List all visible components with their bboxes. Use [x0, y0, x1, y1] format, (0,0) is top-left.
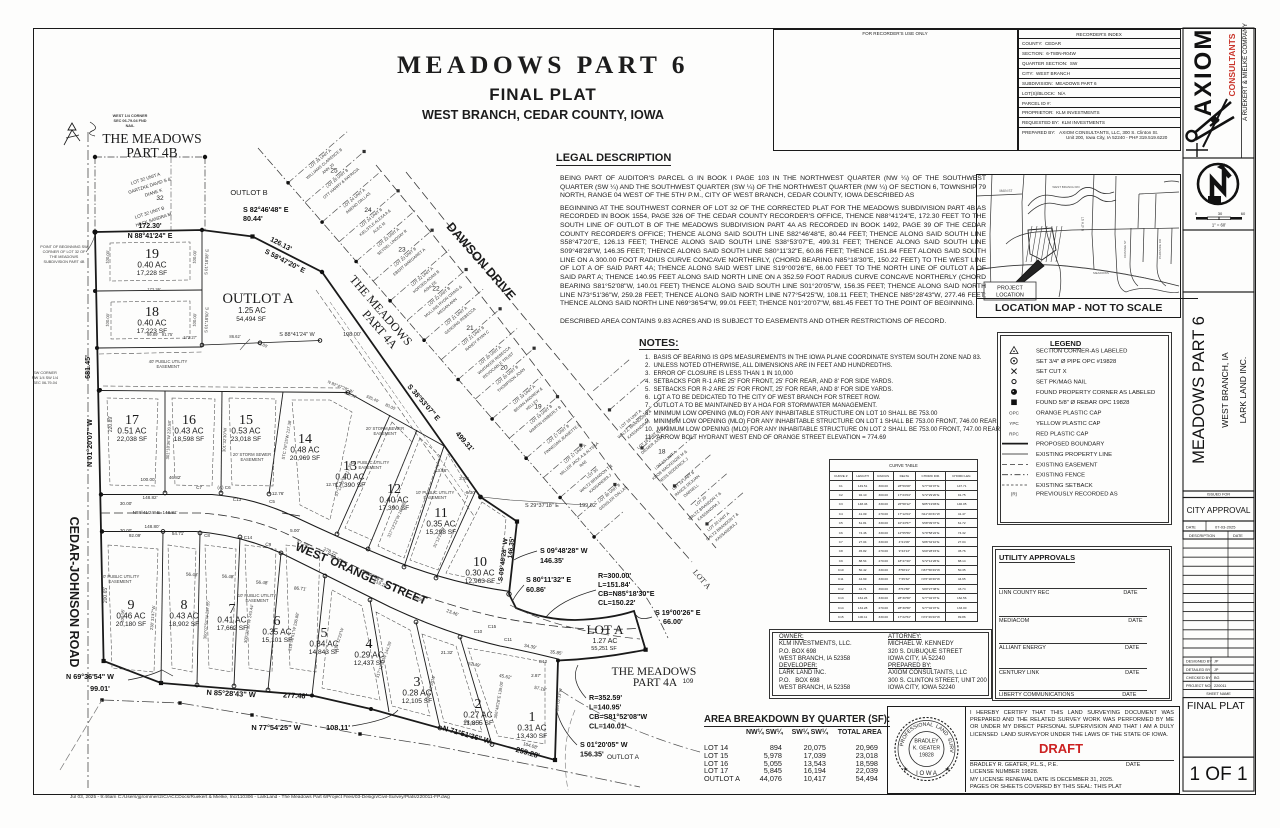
svg-text:54,494 SF: 54,494 SF — [236, 316, 266, 323]
svg-text:116.51': 116.51' — [343, 390, 357, 400]
svg-text:N 88°41'24" E: N 88°41'24" E — [128, 232, 173, 240]
svg-text:S 82°46'48" E: S 82°46'48" E — [243, 205, 289, 214]
svg-text:CHECKED BY: CHECKED BY — [1186, 676, 1211, 680]
svg-text:DETAILED BY: DETAILED BY — [1186, 668, 1211, 672]
svg-text:3.00': 3.00' — [459, 476, 469, 481]
svg-text:22,038 SF: 22,038 SF — [117, 436, 147, 443]
svg-text:45.62': 45.62' — [499, 673, 512, 680]
svg-text:499.31': 499.31' — [454, 429, 477, 453]
svg-text:S 80°11'32" E: S 80°11'32" E — [526, 575, 571, 584]
svg-text:EASEMENT: EASEMENT — [156, 364, 179, 369]
svg-text:WEST 1/4 CORNER: WEST 1/4 CORNER — [113, 114, 148, 118]
svg-text:0.51 AC: 0.51 AC — [117, 427, 146, 436]
svg-text:100.95': 100.95' — [120, 609, 126, 623]
svg-text:60.86': 60.86' — [526, 585, 546, 594]
svg-text:PART 4A: PART 4A — [633, 677, 678, 689]
svg-text:156.35': 156.35' — [580, 750, 604, 759]
svg-text:0.27 AC: 0.27 AC — [463, 711, 492, 720]
svg-text:S 01°20'05" W: S 01°20'05" W — [580, 740, 628, 749]
svg-text:N 01°20'07" W: N 01°20'07" W — [85, 419, 94, 467]
svg-text:PART 4B: PART 4B — [126, 145, 177, 160]
svg-text:S 19°00'26" E: S 19°00'26" E — [655, 608, 701, 617]
svg-text:54.71': 54.71' — [172, 531, 184, 536]
svg-text:C13: C13 — [233, 497, 242, 502]
svg-text:18,902 SF: 18,902 SF — [169, 621, 199, 628]
svg-text:EASEMENT: EASEMENT — [373, 431, 396, 436]
svg-text:22: 22 — [432, 286, 440, 293]
svg-text:C9: C9 — [265, 542, 272, 548]
svg-text:C8: C8 — [204, 533, 210, 538]
svg-text:18,598 SF: 18,598 SF — [174, 436, 204, 443]
svg-text:0.35 AC: 0.35 AC — [262, 628, 291, 637]
svg-text:148.82': 148.82' — [143, 495, 158, 500]
svg-text:66.00': 66.00' — [663, 617, 683, 626]
svg-text:LOT A: LOT A — [587, 622, 625, 637]
svg-text:20,969 SF: 20,969 SF — [290, 455, 320, 462]
svg-text:07-03-2025: 07-03-2025 — [1215, 525, 1236, 530]
svg-text:NAIL: NAIL — [126, 124, 136, 128]
svg-text:0: 0 — [1195, 211, 1198, 216]
svg-text:199.02': 199.02' — [579, 503, 597, 509]
svg-text:L=140.95': L=140.95' — [589, 703, 622, 712]
svg-text:MEADOWS PART 6: MEADOWS PART 6 — [1190, 316, 1208, 464]
svg-text:LARK LAND INC.: LARK LAND INC. — [1238, 357, 1248, 424]
svg-text:C14: C14 — [244, 535, 253, 540]
svg-text:SW CORNER: SW CORNER — [33, 371, 57, 375]
svg-text:EASEMENT: EASEMENT — [240, 457, 263, 462]
svg-text:0.40 AC: 0.40 AC — [137, 319, 166, 328]
svg-text:18: 18 — [658, 449, 666, 456]
svg-text:N 77°54'25" W: N 77°54'25" W — [251, 723, 300, 732]
svg-text:20: 20 — [500, 364, 508, 371]
svg-text:N 85°28'43" W: N 85°28'43" W — [206, 688, 256, 700]
svg-text:13,430 SF: 13,430 SF — [517, 733, 547, 740]
svg-text:80.44': 80.44' — [243, 214, 263, 223]
svg-text:EASEMENT: EASEMENT — [358, 465, 381, 470]
svg-text:JP: JP — [1214, 668, 1219, 672]
svg-text:0.43 AC: 0.43 AC — [174, 427, 203, 436]
svg-text:WEST BRANCH, IA: WEST BRANCH, IA — [1220, 352, 1230, 428]
svg-text:1" = 60’: 1" = 60’ — [1212, 223, 1226, 228]
svg-text:17,662 SF: 17,662 SF — [217, 625, 247, 632]
svg-text:24: 24 — [364, 207, 372, 214]
svg-text:0.29 AC: 0.29 AC — [354, 651, 383, 660]
svg-text:172.27': 172.27' — [183, 335, 197, 340]
svg-text:S 29°37'18" E: S 29°37'18" E — [525, 503, 559, 509]
svg-text:1.27 AC: 1.27 AC — [593, 638, 618, 645]
svg-text:99.89' 91.75': 99.89' 91.75' — [147, 332, 173, 337]
svg-text:0.30 AC: 0.30 AC — [465, 569, 494, 578]
svg-text:L=151.84': L=151.84' — [598, 580, 631, 589]
svg-text:148.80': 148.80' — [145, 524, 160, 529]
svg-text:13.46': 13.46' — [435, 468, 447, 473]
svg-text:23: 23 — [398, 246, 406, 253]
svg-text:335.40': 335.40' — [365, 394, 380, 404]
svg-text:238' 31'47"W: 238' 31'47"W — [149, 605, 156, 630]
svg-text:100.00': 100.00' — [192, 250, 198, 264]
svg-text:23.46': 23.46' — [446, 608, 459, 617]
svg-text:FINAL PLAT: FINAL PLAT — [1187, 700, 1245, 712]
svg-text:NW 1/4 SW 1/4: NW 1/4 SW 1/4 — [32, 376, 58, 380]
svg-text:C15: C15 — [488, 624, 497, 629]
svg-text:0.31 AC: 0.31 AC — [517, 724, 546, 733]
svg-text:(33°02'33"W: (33°02'33"W — [554, 688, 563, 712]
svg-text:220.89': 220.89' — [108, 416, 114, 432]
svg-text:R=300.00': R=300.00' — [598, 571, 631, 580]
svg-text:30.00': 30.00' — [120, 501, 132, 506]
svg-text:100.00': 100.00' — [141, 477, 156, 482]
svg-text:1.25 AC: 1.25 AC — [238, 306, 266, 315]
svg-text:2.87': 2.87' — [531, 673, 541, 678]
svg-text:100.00': 100.00' — [105, 313, 111, 327]
svg-text:STREET: STREET — [382, 579, 428, 608]
svg-text:N 69°36'54" W: N 69°36'54" W — [66, 672, 114, 681]
svg-text:EASEMENT: EASEMENT — [108, 579, 131, 584]
svg-text:277.46': 277.46' — [283, 690, 308, 700]
svg-text:EASEMENT: EASEMENT — [423, 495, 446, 500]
svg-text:21: 21 — [466, 325, 474, 332]
svg-text:DATE: DATE — [1233, 534, 1243, 538]
svg-text:THE MEADOWS: THE MEADOWS — [102, 131, 201, 146]
svg-text:19: 19 — [534, 404, 542, 411]
svg-text:CONSULTANTS: CONSULTANTS — [1227, 33, 1237, 96]
svg-text:CL=140.01': CL=140.01' — [589, 722, 627, 731]
svg-text:25: 25 — [330, 168, 338, 175]
svg-text:12.76': 12.76' — [272, 491, 284, 496]
svg-text:100.00': 100.00' — [192, 313, 198, 327]
svg-text:86.71': 86.71' — [294, 585, 307, 591]
svg-text:SEC 06-79-04 FND: SEC 06-79-04 FND — [114, 119, 147, 123]
svg-text:DATE: DATE — [1186, 526, 1196, 530]
svg-text:301°18'36"W 220.58': 301°18'36"W 220.58' — [165, 420, 172, 459]
svg-text:THE MEADOWS: THE MEADOWS — [50, 255, 79, 259]
svg-text:1 OF 1: 1 OF 1 — [1189, 764, 1247, 785]
svg-text:146.35': 146.35' — [540, 556, 564, 565]
svg-text:DESIGNED BY: DESIGNED BY — [1186, 660, 1212, 664]
svg-text:(A) C6: (A) C6 — [217, 485, 231, 490]
svg-text:C5: C5 — [269, 499, 275, 504]
svg-text:S 01°18'38" E: S 01°18'38" E — [203, 249, 209, 275]
svg-text:CB=S81°52'08"W: CB=S81°52'08"W — [589, 712, 647, 721]
svg-text:OUTLOT A: OUTLOT A — [607, 754, 640, 761]
svg-text:92.09': 92.09' — [129, 533, 141, 538]
svg-text:306°48'28"E 139.00': 306°48'28"E 139.00' — [493, 680, 505, 718]
svg-text:35.85': 35.85' — [550, 649, 563, 656]
svg-text:CORNER OF LOT 32 OF: CORNER OF LOT 32 OF — [43, 250, 86, 254]
svg-text:A RUEKERT & MIELKE COMPANY: A RUEKERT & MIELKE COMPANY — [1242, 23, 1249, 121]
svg-text:0.41 AC: 0.41 AC — [217, 616, 246, 625]
svg-text:CEDAR-JOHNSON ROAD: CEDAR-JOHNSON ROAD — [67, 517, 81, 668]
svg-text:56.48': 56.48' — [186, 572, 199, 578]
svg-text:34.39': 34.39' — [524, 643, 537, 650]
svg-text:0.43 AC: 0.43 AC — [169, 612, 198, 621]
svg-text:C12: C12 — [539, 659, 548, 664]
svg-text:32: 32 — [156, 195, 164, 202]
svg-text:55,251 SF: 55,251 SF — [591, 646, 617, 652]
svg-text:SUBDIVISION PART 4B: SUBDIVISION PART 4B — [44, 260, 85, 264]
svg-text:C10: C10 — [474, 629, 483, 634]
svg-text:41.80': 41.80' — [256, 340, 268, 349]
svg-text:OUTLOT A: OUTLOT A — [222, 291, 294, 307]
svg-text:C7: C7 — [196, 485, 202, 490]
svg-text:LOT A: LOT A — [691, 568, 713, 591]
svg-text:CB=N85°18'30"E: CB=N85°18'30"E — [598, 589, 655, 598]
svg-text:EASEMENT: EASEMENT — [245, 598, 268, 603]
svg-text:681.45': 681.45' — [83, 355, 92, 379]
svg-text:N88°41'24" E 148.81': N88°41'24" E 148.81' — [133, 510, 178, 515]
svg-text:12,963 SF: 12,963 SF — [465, 578, 495, 585]
svg-text:17,228 SF: 17,228 SF — [137, 270, 167, 277]
svg-text:PROJECT NO.: PROJECT NO. — [1186, 684, 1211, 688]
svg-text:200.65': 200.65' — [103, 587, 109, 603]
svg-text:60: 60 — [1241, 211, 1246, 216]
svg-text:S 01°18'50" E: S 01°18'50" E — [203, 307, 209, 333]
svg-text:JP: JP — [1214, 660, 1219, 664]
svg-text:SEC 06-79-04: SEC 06-79-04 — [33, 381, 57, 385]
svg-text:300°07'55"W 237.55': 300°07'55"W 237.55' — [202, 600, 210, 639]
svg-text:220011: 220011 — [1214, 684, 1226, 688]
svg-text:86.62': 86.62' — [229, 334, 240, 339]
svg-text:0.53 AC: 0.53 AC — [231, 427, 260, 436]
svg-text:-9.30': -9.30' — [464, 490, 475, 495]
svg-text:DESCRIPTION: DESCRIPTION — [1189, 534, 1215, 538]
svg-text:46.82': 46.82' — [169, 475, 181, 480]
svg-text:172.26': 172.26' — [147, 287, 161, 292]
svg-text:5.00': 5.00' — [290, 528, 300, 533]
svg-text:S 09°48'28" W: S 09°48'28" W — [540, 546, 588, 555]
svg-text:21.32': 21.32' — [441, 650, 453, 655]
svg-text:S 09°48'28" W: S 09°48'28" W — [496, 537, 509, 582]
svg-text:108.00': 108.00' — [343, 332, 361, 338]
svg-text:CITY APPROVAL: CITY APPROVAL — [1187, 506, 1251, 515]
svg-text:0.48 AC: 0.48 AC — [290, 446, 319, 455]
svg-text:OUTLOT B: OUTLOT B — [230, 188, 267, 197]
svg-text:AXIOM: AXIOM — [1190, 28, 1217, 117]
svg-text:12.76': 12.76' — [326, 482, 338, 487]
svg-text:POINT OF BEGINNING SW: POINT OF BEGINNING SW — [40, 245, 88, 249]
svg-text:SHEET NAME: SHEET NAME — [1206, 692, 1231, 696]
svg-text:ISSUED FOR: ISSUED FOR — [1207, 493, 1230, 497]
svg-text:R=352.59': R=352.59' — [589, 693, 622, 702]
svg-text:C11: C11 — [504, 637, 513, 642]
svg-text:23,018 SF: 23,018 SF — [231, 436, 261, 443]
svg-text:301°32'30"W: 301°32'30"W — [221, 428, 227, 452]
svg-text:BG: BG — [1214, 676, 1220, 680]
svg-text:56.48': 56.48' — [222, 574, 235, 580]
svg-text:S 88°41'24" W: S 88°41'24" W — [279, 332, 315, 338]
svg-text:CL=150.22': CL=150.22' — [598, 598, 636, 607]
svg-text:0.40 AC: 0.40 AC — [137, 261, 166, 270]
svg-text:108.11': 108.11' — [326, 723, 350, 732]
svg-text:100.00': 100.00' — [105, 250, 111, 264]
svg-text:99.01': 99.01' — [90, 684, 110, 693]
svg-text:52.49': 52.49' — [468, 661, 481, 668]
svg-text:109: 109 — [683, 678, 694, 685]
svg-text:30: 30 — [1218, 211, 1223, 216]
svg-text:56.48': 56.48' — [256, 580, 269, 586]
